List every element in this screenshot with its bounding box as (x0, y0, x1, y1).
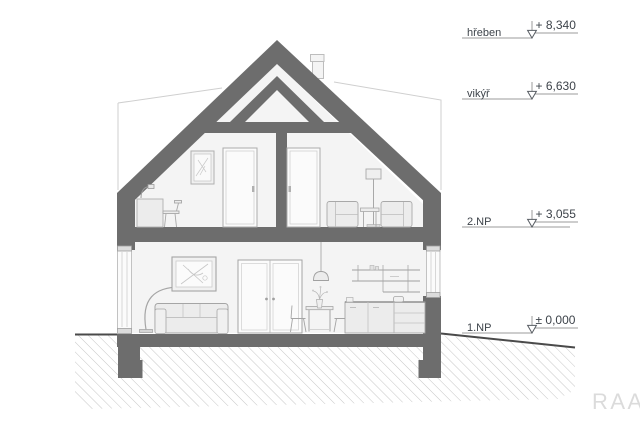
door-handle (252, 186, 255, 192)
door-2np-right (287, 148, 320, 227)
level-label: hřeben (467, 27, 501, 39)
window-left-1np (118, 246, 132, 334)
elevation-marker-vikyr: vikýř + 6,630 (462, 79, 578, 100)
collar-beam (195, 122, 359, 133)
picture-frame-large (172, 257, 216, 291)
counter-item (347, 298, 354, 303)
level-label: 2.NP (467, 216, 491, 228)
door-handle (265, 298, 268, 301)
wall-right-1np-parapet (423, 296, 441, 334)
ceiling-slab-1np (117, 227, 441, 242)
window-right-1np (427, 246, 441, 298)
center-wall-2np (276, 133, 287, 227)
elevation-marker-1np: 1.NP ± 0,000 (462, 313, 578, 334)
door-2np-left (223, 148, 257, 227)
picture-frame-small (191, 151, 214, 184)
door-handle (272, 298, 275, 301)
level-value: + 8,340 (536, 18, 577, 32)
level-value: + 6,630 (536, 79, 577, 93)
level-label: 1.NP (467, 322, 491, 334)
armchair-right (381, 202, 412, 228)
dresser (137, 199, 163, 227)
level-label: vikýř (467, 88, 490, 100)
architectural-section-drawing: hřeben + 8,340 vikýř + 6,630 2.NP + 3,05… (0, 0, 640, 427)
kitchen-counter (345, 297, 425, 334)
section-canvas: hřeben + 8,340 vikýř + 6,630 2.NP + 3,05… (0, 0, 640, 427)
footing-left (118, 334, 143, 378)
watermark: RAA (592, 389, 640, 414)
level-value: ± 0,000 (536, 313, 576, 327)
floor-slab (117, 334, 441, 347)
elevation-marker-hreben: hřeben + 8,340 (462, 18, 578, 39)
kettle (394, 297, 404, 303)
desk-lamp-head (148, 185, 154, 189)
door-handle (289, 186, 292, 192)
elevation-marker-2np: 2.NP + 3,055 (462, 207, 578, 228)
sofa (155, 304, 228, 334)
level-value: + 3,055 (536, 207, 577, 221)
armchair-left (327, 202, 358, 228)
